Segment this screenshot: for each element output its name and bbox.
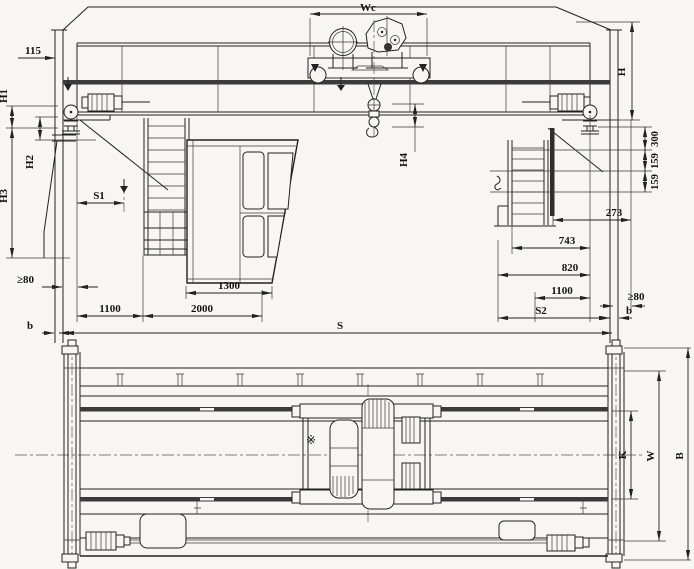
control-box bbox=[140, 514, 186, 548]
hoist-trolley bbox=[308, 16, 430, 83]
rail-datum-arrow bbox=[64, 84, 72, 91]
control-box bbox=[499, 521, 535, 540]
dim-label-s: S bbox=[337, 320, 343, 332]
crane-drawing-svg: Wc 115 H1 H2 H3 S1 H4 bbox=[0, 0, 694, 569]
left-runway-column bbox=[44, 30, 76, 343]
dim-label-w: W bbox=[645, 451, 657, 462]
hoist-motor-plan bbox=[330, 420, 358, 498]
dim-label-s1: S1 bbox=[93, 190, 105, 202]
trolley-wheel bbox=[310, 67, 326, 83]
left-end-truck bbox=[62, 77, 168, 190]
dim-label-h3: H3 bbox=[0, 188, 10, 203]
right-ladder bbox=[494, 128, 556, 226]
reference-hook-glyph bbox=[495, 176, 501, 190]
reference-mark: ※ bbox=[306, 433, 316, 447]
dim-label-h2: H2 bbox=[24, 154, 36, 169]
dim-label-159b: 159 bbox=[650, 174, 661, 190]
rail-datum-arrow bbox=[337, 85, 345, 91]
cab-window bbox=[268, 153, 293, 209]
ladder-guide-bar bbox=[550, 128, 555, 216]
trolley-buffer bbox=[292, 406, 300, 417]
plan-view: ※ K W B bbox=[15, 340, 691, 568]
cab-window bbox=[243, 152, 264, 209]
travel-motor-plan bbox=[547, 535, 575, 551]
dim-label-273: 273 bbox=[606, 207, 623, 219]
crane-travel-drive bbox=[86, 514, 589, 551]
dim-label-820: 820 bbox=[562, 262, 579, 274]
left-ladder bbox=[144, 118, 189, 255]
buffer bbox=[606, 346, 622, 354]
dim-label-1100-left: 1100 bbox=[99, 303, 121, 315]
girder-top-rail bbox=[63, 80, 610, 85]
left-end-carriage bbox=[62, 340, 80, 568]
cab-window bbox=[243, 216, 264, 257]
trolley-plan: ※ bbox=[292, 399, 441, 509]
dim-label-1100-right: 1100 bbox=[551, 285, 573, 297]
trolley-buffer bbox=[292, 492, 300, 503]
buffer bbox=[62, 346, 78, 354]
buffer bbox=[62, 554, 78, 562]
trolley-buffer bbox=[433, 406, 441, 417]
gearbox-plan bbox=[402, 463, 420, 489]
dim-label-b: B bbox=[674, 452, 686, 460]
trolley-wheel bbox=[413, 67, 429, 83]
dim-label-1300: 1300 bbox=[218, 280, 241, 292]
upper-dimensions: Wc 115 H1 H2 H3 S1 H4 bbox=[0, 2, 661, 333]
dim-label-h4: H4 bbox=[398, 152, 410, 167]
right-end-truck bbox=[522, 94, 618, 172]
dim-label-159a: 159 bbox=[650, 153, 661, 169]
rail-clamp bbox=[580, 501, 587, 514]
dim-label-s2: S2 bbox=[535, 305, 547, 317]
dim-label-300: 300 bbox=[650, 131, 661, 147]
dim-label-gte80-right: ≥80 bbox=[627, 291, 645, 303]
front-elevation-view: Wc 115 H1 H2 H3 S1 H4 bbox=[0, 2, 661, 343]
dim-label-h1: H1 bbox=[0, 89, 10, 103]
trolley-buffer bbox=[433, 492, 441, 503]
operator-cab bbox=[187, 140, 298, 283]
gearbox-plan bbox=[402, 417, 420, 443]
buffer bbox=[606, 554, 622, 562]
bridge-top-contour bbox=[63, 7, 611, 30]
crane-drawing-page: Wc 115 H1 H2 H3 S1 H4 bbox=[0, 0, 694, 569]
dim-label-743: 743 bbox=[559, 235, 576, 247]
dim-label-h: H bbox=[616, 67, 628, 76]
rail-clamp bbox=[194, 501, 201, 514]
dim-label-115: 115 bbox=[25, 45, 41, 57]
hook-icon bbox=[369, 117, 379, 127]
dim-label-gte80-left: ≥80 bbox=[17, 274, 35, 286]
dim-label-b-right: b bbox=[626, 305, 632, 317]
dim-label-2000: 2000 bbox=[191, 303, 214, 315]
brake-drum bbox=[384, 43, 392, 51]
dim-label-k: K bbox=[617, 450, 629, 459]
dim-label-b-left: b bbox=[27, 320, 33, 332]
dim-label-wc: Wc bbox=[360, 2, 376, 14]
hook-centerline-arrow bbox=[120, 186, 128, 193]
cab-window bbox=[268, 216, 284, 257]
